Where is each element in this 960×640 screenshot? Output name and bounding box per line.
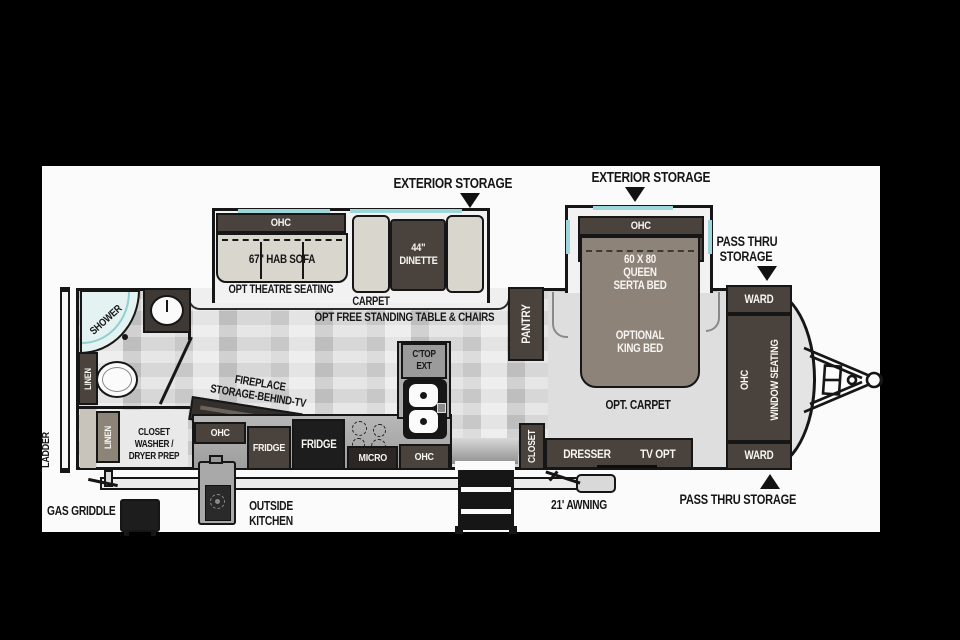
ctop-line-2: EXT <box>407 361 441 373</box>
bedroom-arc-left <box>552 292 568 338</box>
microwave: MICRO <box>347 446 398 470</box>
pantry: PANTRY <box>508 287 544 361</box>
kitchen-ohc-right: OHC <box>399 444 450 470</box>
step-foot <box>455 526 463 534</box>
opt-carpet-label: OPT. CARPET <box>605 398 671 412</box>
griddle-leg <box>124 530 129 536</box>
outside-kitchen-label: OUTSIDE KITCHEN <box>236 499 306 529</box>
ward-top-label: WARD <box>745 294 774 306</box>
bed-size-3: SERTA BED <box>591 280 690 293</box>
sink-faucet <box>437 403 446 413</box>
bath-sink-counter <box>143 288 191 333</box>
wd-closet-label: CLOSET WASHER / DRYER PREP <box>116 427 192 463</box>
ward-top: WARD <box>726 285 792 314</box>
exterior-storage-left-label: EXTERIOR STORAGE <box>393 176 488 192</box>
toilet <box>96 361 138 398</box>
king-bed-label: OPTIONAL KING BED <box>582 330 698 356</box>
ctop-line-1: C'TOP <box>407 349 441 361</box>
bed-ohc-label: OHC <box>631 220 651 232</box>
kitchen-ohc-left-label: OHC <box>210 427 229 439</box>
floorplan-diagram: OHC 67" HAB SOFA OPT THEATRE SEATING 44"… <box>0 0 960 640</box>
fridge-1-label: FRIDGE <box>253 442 285 454</box>
closet-label: CLOSET <box>527 430 538 463</box>
linen-lower-label: LINEN <box>103 426 114 449</box>
pass-thru-bottom-arrow <box>760 474 780 489</box>
toilet-bowl <box>102 367 132 392</box>
gas-griddle-label: GAS GRIDDLE <box>47 504 111 518</box>
fridge-1: FRIDGE <box>247 426 291 470</box>
wd-room-shade <box>80 409 96 468</box>
awning-roller <box>576 474 616 493</box>
sofa: 67" HAB SOFA <box>216 233 348 283</box>
king-1: OPTIONAL <box>591 330 690 343</box>
wd-line-3: DRYER PREP <box>123 451 185 463</box>
pantry-label: PANTRY <box>519 304 533 343</box>
pass-thru-bottom-label: PASS THRU STORAGE <box>680 492 785 507</box>
pass-thru-top-label: PASS THRU STORAGE <box>710 234 782 264</box>
outside-kitchen-door <box>205 485 231 521</box>
outside-kitchen-latch <box>209 455 223 464</box>
ladder <box>60 289 70 471</box>
sofa-ohc-label: OHC <box>271 217 291 229</box>
micro-label: MICRO <box>358 452 386 464</box>
bed-size-1: 60 X 80 <box>591 254 690 267</box>
free-standing-label: OPT FREE STANDING TABLE & CHAIRS <box>315 310 484 324</box>
king-2: KING BED <box>591 343 690 356</box>
griddle-leg <box>151 530 156 536</box>
pass-thru-top-2: STORAGE <box>716 249 775 264</box>
ladder-cap <box>60 468 70 473</box>
tv-opt-label: TV OPT <box>641 447 676 461</box>
fan-hub <box>215 499 220 504</box>
dinette-label-2: DINETTE <box>399 255 437 268</box>
window-seating: OHC WINDOW SEATING <box>726 314 792 442</box>
exterior-storage-left-arrow <box>460 193 480 208</box>
awning-bar <box>100 477 612 490</box>
fridge-2-label: FRIDGE <box>301 439 336 451</box>
exterior-storage-right-label: EXTERIOR STORAGE <box>591 170 686 186</box>
entry-steps <box>458 470 514 530</box>
kitchen-ohc-left: OHC <box>194 422 246 444</box>
awning-label: 21' AWNING <box>545 498 612 512</box>
pass-thru-top-1: PASS THRU <box>716 234 775 249</box>
burner-icon <box>373 424 386 437</box>
slide-window-dinette <box>350 209 462 213</box>
dresser-label: DRESSER <box>563 447 611 461</box>
outside-kitchen-line-1: OUTSIDE <box>242 499 299 514</box>
ward-bottom: WARD <box>726 442 792 470</box>
dinette-table: 44" DINETTE <box>390 219 446 291</box>
step-foot <box>509 526 517 534</box>
sink-bowl <box>409 384 438 407</box>
kitchen-sink <box>403 379 447 439</box>
linen-upper-label: LINEN <box>83 368 93 390</box>
bed-size-2: QUEEN <box>591 267 690 280</box>
ladder-cap <box>60 287 70 292</box>
sofa-seam <box>222 239 342 241</box>
dinette-bench-left <box>352 215 390 293</box>
dresser: DRESSER TV OPT <box>545 438 693 469</box>
bed-window-top <box>593 206 673 210</box>
bed-window-left <box>566 220 570 254</box>
gas-griddle-box <box>120 499 160 532</box>
fridge-2: FRIDGE <box>292 419 345 470</box>
wd-line-1: CLOSET <box>123 427 185 439</box>
bed-size-label: 60 X 80 QUEEN SERTA BED <box>582 254 698 293</box>
outside-kitchen-line-2: KITCHEN <box>242 514 299 529</box>
closet: CLOSET <box>519 423 545 470</box>
bed-ohc-cabinet: OHC <box>578 216 704 236</box>
dinette-bench-right <box>446 215 484 293</box>
step-edge <box>461 487 511 492</box>
ctop-ext: C'TOP EXT <box>401 343 447 379</box>
carpet-label: CARPET <box>349 296 393 308</box>
exterior-storage-right-arrow <box>625 187 645 202</box>
sofa-ohc-cabinet: OHC <box>216 213 346 233</box>
burner-icon <box>352 421 367 436</box>
sink-drain <box>420 418 427 425</box>
sofa-label: 67" HAB SOFA <box>230 252 335 266</box>
ladder-label: LADDER <box>40 432 52 468</box>
window-seating-label: WINDOW SEATING <box>711 366 839 395</box>
ladder-label-wrap: LADDER <box>36 424 56 476</box>
linen-upper: LINEN <box>78 352 98 405</box>
theatre-seating-label: OPT THEATRE SEATING <box>223 284 339 296</box>
sink-bowl <box>409 410 438 433</box>
queen-bed: 60 X 80 QUEEN SERTA BED OPTIONAL KING BE… <box>580 236 700 388</box>
wd-line-2: WASHER / <box>123 439 185 451</box>
outside-kitchen-panel <box>198 461 236 525</box>
bath-faucet <box>166 300 168 312</box>
kitchen-ohc-right-label: OHC <box>415 451 434 463</box>
sink-drain <box>420 392 427 399</box>
ward-bottom-label: WARD <box>745 450 774 462</box>
bed-seam <box>586 250 694 252</box>
pass-thru-top-arrow <box>757 266 777 281</box>
step-edge <box>461 509 511 514</box>
tv-icon <box>597 465 657 468</box>
shower-drain <box>122 334 128 340</box>
dinette-label-1: 44" <box>411 242 425 255</box>
